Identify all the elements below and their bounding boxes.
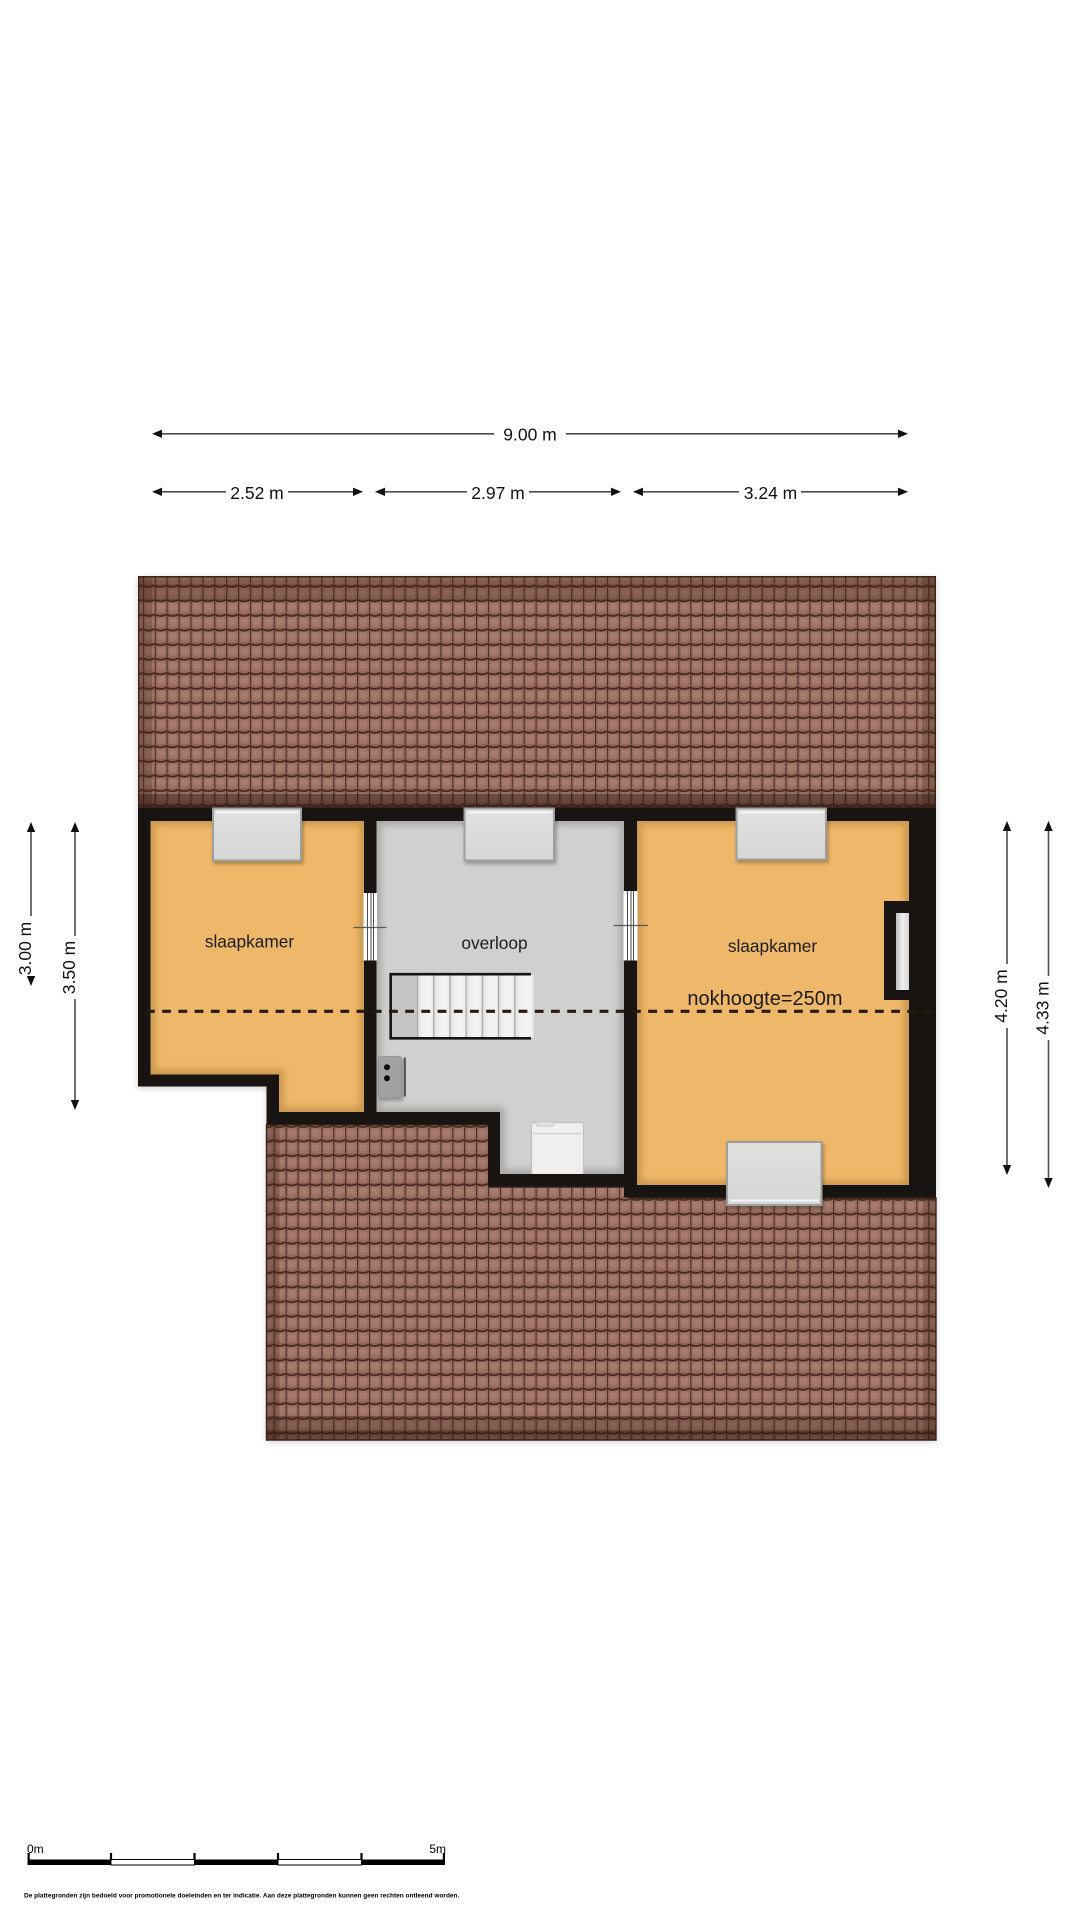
svg-text:overloop: overloop [461, 933, 527, 953]
svg-text:De plattegronden zijn bedoeld: De plattegronden zijn bedoeld voor promo… [24, 1893, 460, 1900]
svg-text:0m: 0m [27, 1842, 44, 1856]
svg-text:5m: 5m [429, 1842, 446, 1856]
svg-text:9.00 m: 9.00 m [503, 425, 557, 445]
svg-text:4.33 m: 4.33 m [1033, 981, 1053, 1035]
svg-text:3.50 m: 3.50 m [59, 941, 79, 995]
svg-text:3.00 m: 3.00 m [15, 922, 35, 976]
svg-text:3.24 m: 3.24 m [744, 483, 798, 503]
svg-text:slaapkamer: slaapkamer [728, 936, 818, 956]
svg-text:2.52 m: 2.52 m [230, 483, 284, 503]
svg-text:slaapkamer: slaapkamer [205, 932, 295, 952]
svg-text:2.97 m: 2.97 m [471, 483, 525, 503]
svg-text:nokhoogte=250m: nokhoogte=250m [687, 988, 842, 1010]
svg-text:4.20 m: 4.20 m [991, 969, 1011, 1023]
